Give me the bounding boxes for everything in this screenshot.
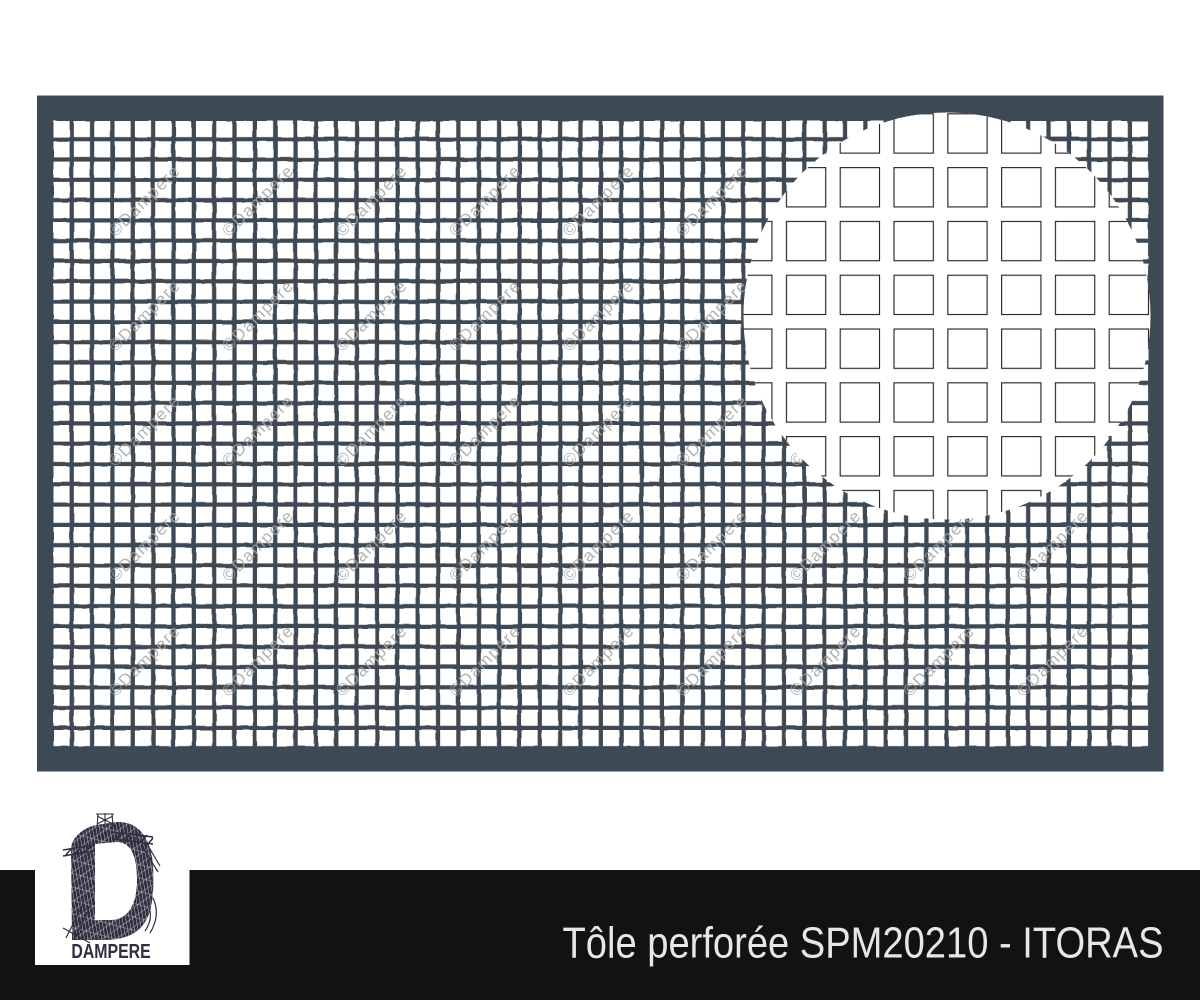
svg-text:Tôle perforée SPM20210 - ITORA: Tôle perforée SPM20210 - ITORAS — [563, 920, 1164, 968]
svg-text:DAMPERE: DAMPERE — [71, 941, 150, 963]
